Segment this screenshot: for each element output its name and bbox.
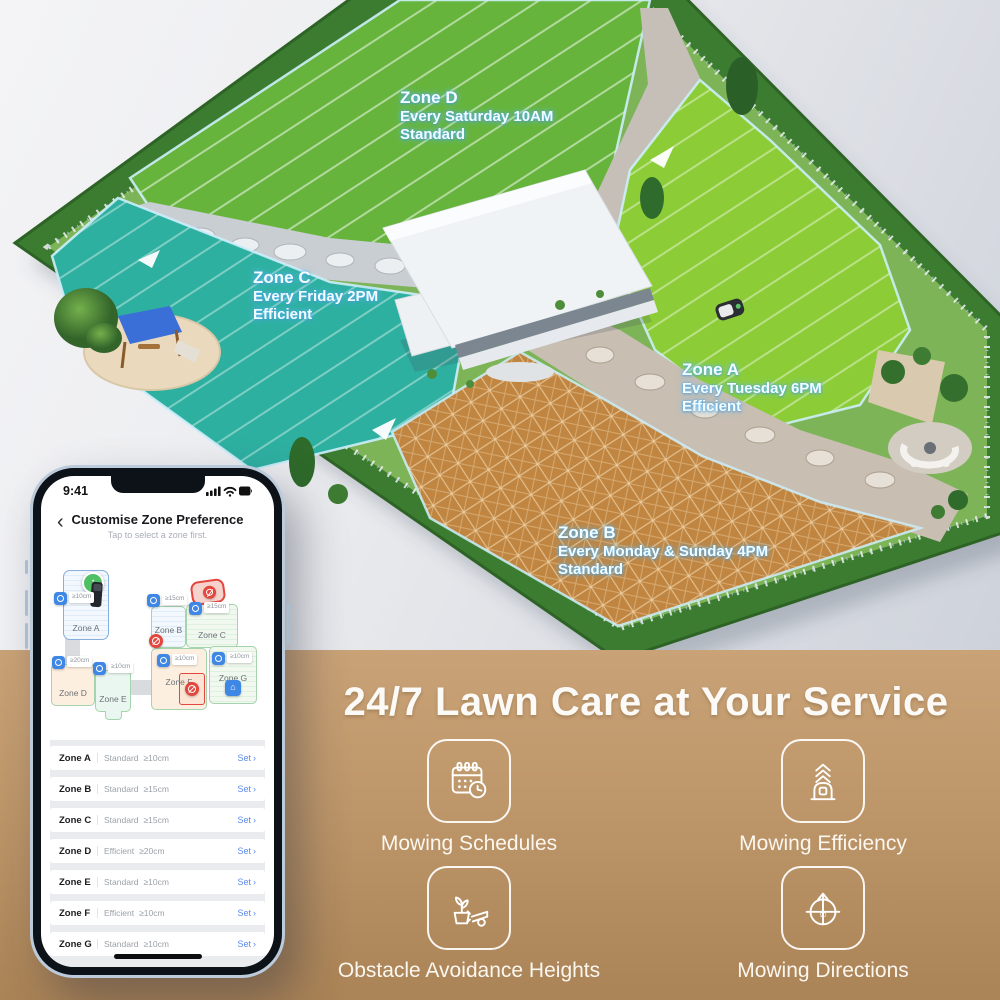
nav-header: ‹ Customise Zone Preference Tap to selec… [41, 512, 274, 540]
set-button[interactable]: Set› [237, 753, 256, 763]
phone-mockup: 9:41 [30, 465, 285, 978]
set-button[interactable]: Set› [237, 784, 256, 794]
status-icons [206, 485, 252, 497]
zone-c-name: Zone C [253, 268, 378, 288]
zone-b-height-badge: ≥15cm [147, 594, 187, 607]
zone-a-height-badge: ≥10cm [54, 592, 94, 605]
zone-list: Zone A Standard≥10cm Set› Zone B Standar… [50, 740, 265, 967]
zone-d-name: Zone D [400, 88, 553, 108]
mute-switch[interactable] [25, 560, 28, 574]
zone-c-height-badge: ≥15cm [189, 602, 229, 615]
plant-mower-blade-icon [427, 866, 511, 950]
feature-obstacle-avoidance: Obstacle Avoidance Heights [292, 866, 646, 983]
zone-row-c[interactable]: Zone C Standard≥15cm Set› [50, 808, 265, 832]
wifi-icon [225, 488, 236, 497]
mow-height-icon [157, 654, 170, 667]
volume-down-button[interactable] [25, 623, 28, 649]
mower-speed-icon [781, 739, 865, 823]
no-go-zone-icon [185, 682, 199, 696]
zone-f-height-badge: ≥10cm [157, 654, 197, 667]
set-button[interactable]: Set› [237, 815, 256, 825]
chevron-right-icon: › [253, 784, 256, 794]
feature-label: Mowing Schedules [381, 832, 557, 856]
zone-d-height-badge: ≥20cm [52, 656, 92, 669]
zone-row-g[interactable]: Zone G Standard≥10cm Set› [50, 932, 265, 956]
power-button[interactable] [287, 603, 290, 643]
zone-d-mode: Standard [400, 126, 553, 144]
zone-a-label: Zone A Every Tuesday 6PM Efficient [682, 360, 822, 415]
chevron-right-icon: › [253, 908, 256, 918]
feature-mowing-directions: 90 Mowing Directions [646, 866, 1000, 983]
mow-height-icon [54, 592, 67, 605]
home-indicator[interactable] [114, 954, 202, 959]
phone-notch [111, 476, 205, 493]
mow-height-icon [147, 594, 160, 607]
zone-row-e[interactable]: Zone E Standard≥10cm Set› [50, 870, 265, 894]
battery-icon [239, 487, 252, 496]
zone-d-label: Zone D Every Saturday 10AM Standard [400, 88, 553, 143]
zone-a-schedule: Every Tuesday 6PM [682, 380, 822, 398]
zone-e-height-badge: ≥10cm [93, 662, 133, 675]
zone-c-label: Zone C Every Friday 2PM Efficient [253, 268, 378, 323]
zone-b-label: Zone B Every Monday & Sunday 4PM Standar… [558, 523, 768, 578]
feature-label: Mowing Efficiency [739, 832, 907, 856]
zone-a-mode: Efficient [682, 398, 822, 416]
zone-row-d[interactable]: Zone D Efficient≥20cm Set› [50, 839, 265, 863]
mow-height-icon [93, 662, 106, 675]
zone-row-a[interactable]: Zone A Standard≥10cm Set› [50, 746, 265, 770]
mow-height-icon [212, 652, 225, 665]
promo-content: 24/7 Lawn Care at Your Service [292, 650, 1000, 1000]
zone-d-schedule: Every Saturday 10AM [400, 108, 553, 126]
mow-height-icon [52, 656, 65, 669]
no-go-zone-icon [202, 585, 217, 600]
map-zone-e[interactable]: Zone E [95, 670, 131, 712]
zone-g-height-badge: ≥10cm [212, 652, 252, 665]
page: Zone D Every Saturday 10AM Standard Zone… [0, 0, 1000, 1000]
chevron-right-icon: › [253, 877, 256, 887]
chevron-right-icon: › [253, 939, 256, 949]
calendar-clock-icon [427, 739, 511, 823]
back-button[interactable]: ‹ [57, 514, 64, 530]
mow-height-icon [189, 602, 202, 615]
page-subtitle: Tap to select a zone first. [41, 530, 274, 540]
no-go-rect [179, 673, 205, 705]
zone-row-f[interactable]: Zone F Efficient≥10cm Set› [50, 901, 265, 925]
zone-row-b[interactable]: Zone B Standard≥15cm Set› [50, 777, 265, 801]
feature-mowing-efficiency: Mowing Efficiency [646, 739, 1000, 856]
phone-screen: 9:41 [41, 476, 274, 967]
promo-heading: 24/7 Lawn Care at Your Service [292, 680, 1000, 725]
map-zone-d[interactable]: Zone D [51, 664, 95, 706]
zone-b-name: Zone B [558, 523, 768, 543]
feature-label: Obstacle Avoidance Heights [338, 959, 600, 983]
corridor [131, 680, 152, 695]
zone-b-schedule: Every Monday & Sunday 4PM [558, 543, 768, 561]
zone-b-mode: Standard [558, 561, 768, 579]
volume-up-button[interactable] [25, 590, 28, 616]
set-button[interactable]: Set› [237, 877, 256, 887]
no-go-zone-icon [149, 634, 163, 648]
zone-c-schedule: Every Friday 2PM [253, 288, 378, 306]
feature-label: Mowing Directions [737, 959, 909, 983]
status-time: 9:41 [63, 484, 88, 498]
chevron-right-icon: › [253, 846, 256, 856]
zone-a-name: Zone A [682, 360, 822, 380]
zone-e-tab [105, 711, 122, 720]
chevron-right-icon: › [253, 753, 256, 763]
page-title: Customise Zone Preference [41, 512, 274, 527]
zone-c-mode: Efficient [253, 306, 378, 324]
set-button[interactable]: Set› [237, 939, 256, 949]
chevron-right-icon: › [253, 815, 256, 825]
set-button[interactable]: Set› [237, 846, 256, 856]
zone-map: Zone A ≥10cm Zone B ≥15cm [51, 562, 265, 734]
direction-angle-value: 90 [820, 913, 827, 919]
feature-grid: Mowing Schedules Mowing Efficiency [292, 739, 1000, 983]
set-button[interactable]: Set› [237, 908, 256, 918]
feature-mowing-schedules: Mowing Schedules [292, 739, 646, 856]
direction-compass-icon: 90 [781, 866, 865, 950]
dock-badge-icon [225, 680, 241, 696]
signal-icon [206, 487, 221, 497]
